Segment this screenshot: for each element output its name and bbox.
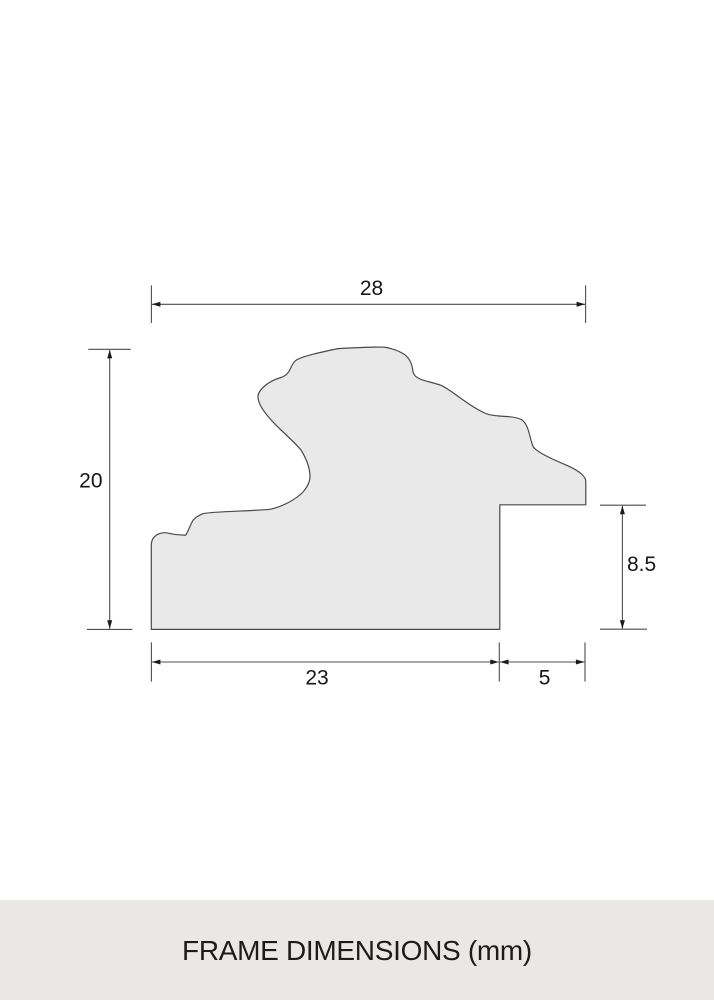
svg-text:28: 28 bbox=[360, 277, 383, 300]
svg-text:8.5: 8.5 bbox=[627, 553, 656, 576]
svg-text:20: 20 bbox=[79, 470, 102, 493]
svg-text:23: 23 bbox=[305, 667, 328, 690]
svg-text:5: 5 bbox=[539, 667, 551, 690]
